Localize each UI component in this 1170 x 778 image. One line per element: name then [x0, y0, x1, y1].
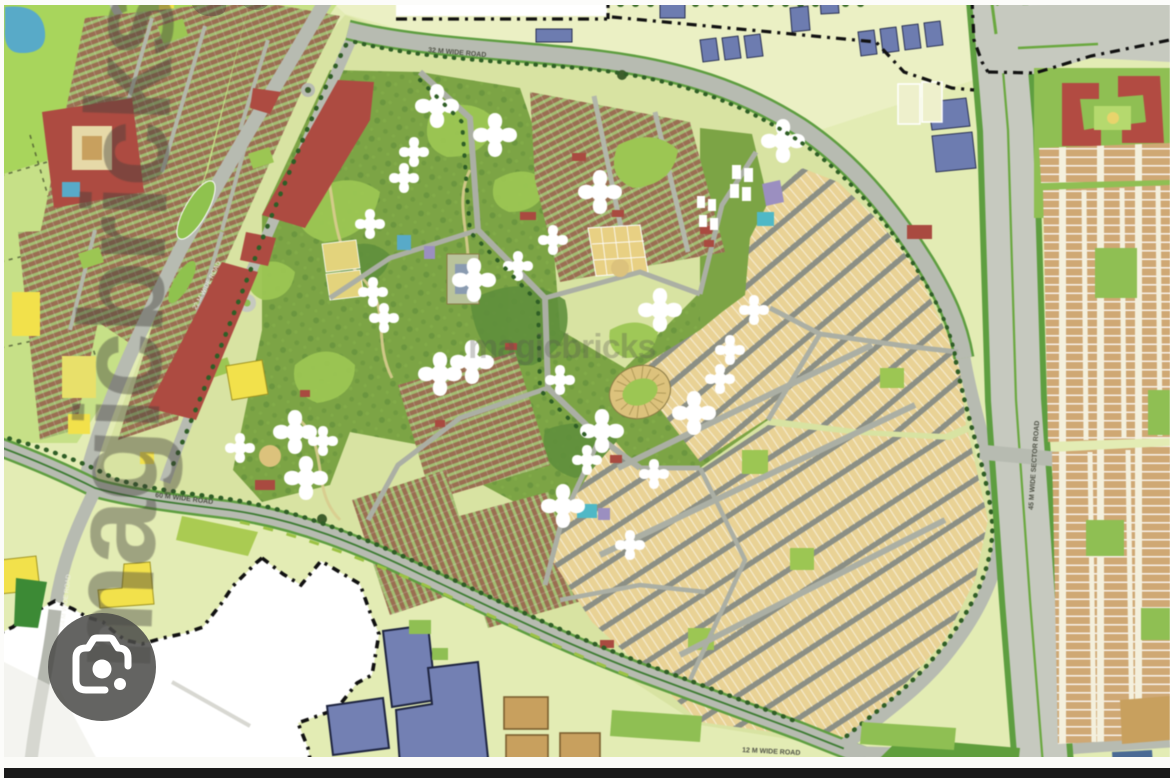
svg-text:magicbricks: magicbricks [42, 0, 200, 673]
svg-text:magicbricks: magicbricks [468, 328, 656, 366]
